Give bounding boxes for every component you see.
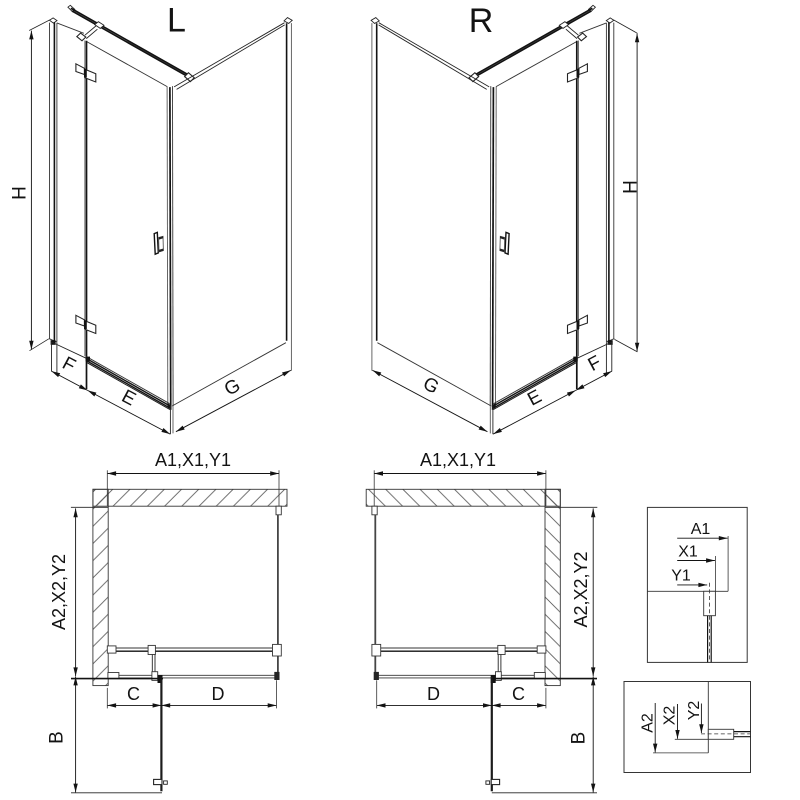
svg-text:X2: X2 [661, 706, 678, 726]
svg-text:F: F [585, 352, 605, 376]
svg-text:D: D [212, 684, 225, 704]
svg-text:B: B [47, 731, 68, 744]
svg-text:A2: A2 [640, 713, 657, 733]
svg-text:L: L [167, 2, 186, 40]
svg-text:H: H [621, 180, 642, 194]
svg-text:A2,X2,Y2: A2,X2,Y2 [49, 554, 69, 630]
svg-text:Y2: Y2 [686, 701, 703, 721]
svg-text:A1,X1,Y1: A1,X1,Y1 [155, 450, 231, 470]
svg-text:A1,X1,Y1: A1,X1,Y1 [420, 450, 496, 470]
svg-text:E: E [118, 386, 139, 410]
svg-text:A2,X2,Y2: A2,X2,Y2 [571, 551, 591, 627]
svg-text:C: C [127, 684, 140, 704]
svg-text:A1: A1 [691, 521, 711, 538]
svg-text:B: B [569, 732, 590, 745]
svg-text:R: R [469, 2, 494, 40]
svg-text:F: F [59, 353, 79, 377]
svg-text:E: E [524, 386, 545, 410]
svg-text:C: C [512, 684, 525, 704]
svg-text:D: D [427, 684, 440, 704]
svg-text:X1: X1 [678, 543, 698, 560]
svg-text:H: H [10, 186, 31, 200]
svg-text:Y1: Y1 [671, 568, 691, 585]
